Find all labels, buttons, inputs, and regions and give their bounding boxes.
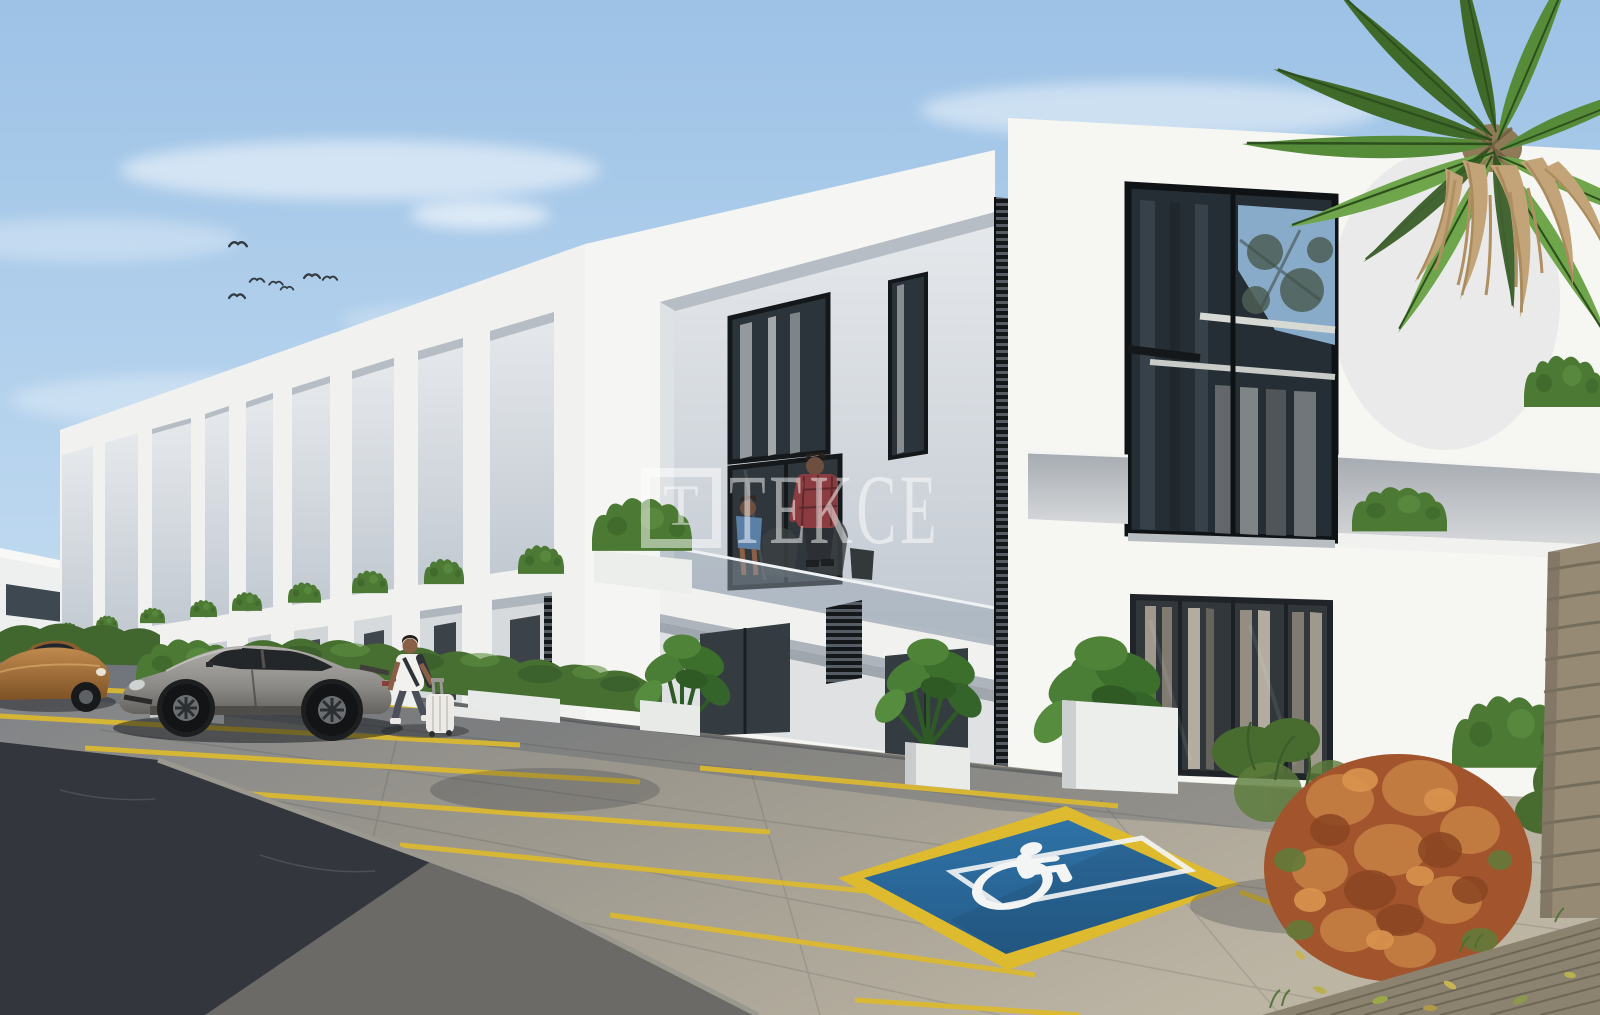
palm-trunk — [1540, 542, 1600, 918]
feature-window — [1128, 185, 1335, 540]
large-balcony-planter — [592, 498, 692, 594]
orange-bush — [1264, 754, 1532, 982]
architectural-render: T TEKCE — [0, 0, 1600, 1015]
